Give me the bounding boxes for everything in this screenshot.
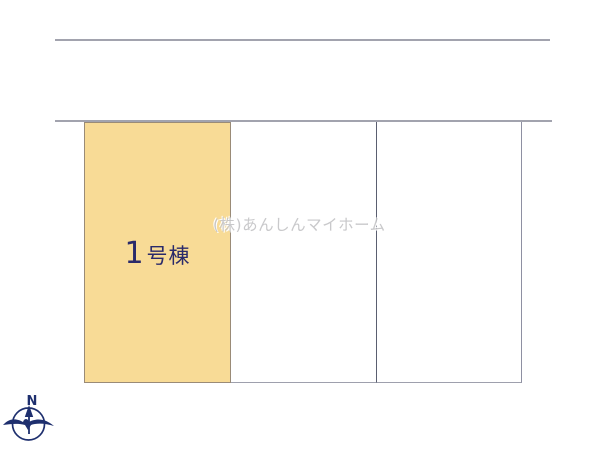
lot-1-suffix: 号棟 — [147, 244, 191, 268]
company-watermark: (株)あんしんマイホーム — [213, 213, 386, 235]
site-plan-canvas: 1号棟 (株)あんしんマイホーム N — [0, 0, 600, 449]
compass-n-label: N — [27, 394, 38, 409]
lot-1-highlighted: 1号棟 — [84, 122, 231, 383]
compass-north-icon: N — [2, 392, 56, 446]
lot-3 — [377, 122, 522, 383]
lot-2 — [231, 122, 377, 383]
lot-1-label: 1号棟 — [124, 239, 190, 269]
road-edge-line-upper — [55, 39, 550, 41]
lot-1-number: 1 — [124, 236, 143, 271]
